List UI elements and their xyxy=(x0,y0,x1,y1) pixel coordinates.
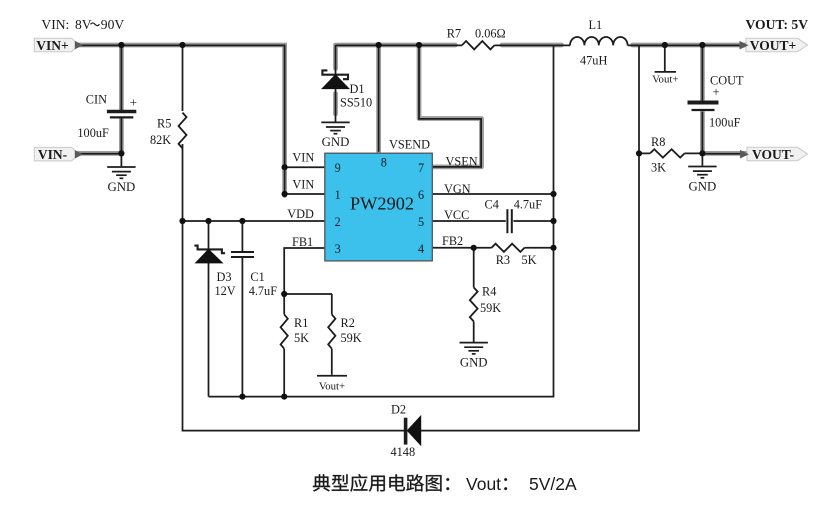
svg-text:8V: 8V xyxy=(75,17,92,32)
svg-text:+: + xyxy=(713,85,720,99)
svg-text:59K: 59K xyxy=(341,331,362,345)
svg-text:FB2: FB2 xyxy=(442,234,463,248)
svg-text:D2: D2 xyxy=(391,402,406,416)
svg-text:9: 9 xyxy=(335,161,341,175)
svg-text:VSEND: VSEND xyxy=(389,138,430,152)
svg-text:59K: 59K xyxy=(480,301,501,315)
svg-text:+: + xyxy=(130,95,137,110)
svg-text:5K: 5K xyxy=(294,331,309,345)
svg-text:R4: R4 xyxy=(482,285,496,299)
svg-text:5V/2A: 5V/2A xyxy=(529,474,577,494)
svg-text:12V: 12V xyxy=(215,284,236,298)
svg-text:Vout: Vout xyxy=(466,474,501,494)
svg-text:5: 5 xyxy=(418,215,424,229)
svg-text:7: 7 xyxy=(418,161,424,175)
svg-text:D1: D1 xyxy=(350,82,365,96)
svg-text:1: 1 xyxy=(335,188,341,202)
svg-text:GND: GND xyxy=(322,135,350,149)
svg-text:100uF: 100uF xyxy=(709,116,741,130)
svg-text:4: 4 xyxy=(418,242,424,256)
svg-text:PW2902: PW2902 xyxy=(350,194,414,214)
svg-text:VSEN: VSEN xyxy=(446,154,478,168)
svg-text:90V: 90V xyxy=(101,17,125,32)
svg-text:C4: C4 xyxy=(485,197,499,211)
svg-text:R1: R1 xyxy=(294,316,308,330)
svg-text:6: 6 xyxy=(418,188,424,202)
svg-text:R2: R2 xyxy=(341,316,355,330)
svg-text:GND: GND xyxy=(689,179,717,193)
svg-text:5K: 5K xyxy=(522,253,537,267)
svg-text:FB1: FB1 xyxy=(292,235,313,249)
svg-text:GND: GND xyxy=(460,355,488,369)
svg-text:R8: R8 xyxy=(651,135,665,149)
svg-text:4.7uF: 4.7uF xyxy=(249,284,278,298)
svg-text:3: 3 xyxy=(335,242,341,256)
svg-text:VOUT+: VOUT+ xyxy=(750,38,796,53)
svg-text:100uF: 100uF xyxy=(77,126,109,140)
svg-text:D3: D3 xyxy=(217,270,232,284)
svg-text:L1: L1 xyxy=(589,18,603,32)
svg-text:VGN: VGN xyxy=(444,182,471,196)
svg-text:0.06Ω: 0.06Ω xyxy=(475,26,506,40)
svg-text:VIN+: VIN+ xyxy=(36,38,68,53)
svg-text:47uH: 47uH xyxy=(580,53,607,67)
svg-text:GND: GND xyxy=(108,180,136,194)
svg-text:VCC: VCC xyxy=(444,208,469,222)
svg-text:VOUT-: VOUT- xyxy=(752,147,794,162)
svg-text:SS510: SS510 xyxy=(340,95,372,109)
svg-text:VIN: VIN xyxy=(292,150,314,164)
svg-text:C1: C1 xyxy=(250,270,264,284)
svg-text:VOUT: 5V: VOUT: 5V xyxy=(746,17,809,32)
svg-text:Vout+: Vout+ xyxy=(319,380,345,392)
svg-text:4.7uF: 4.7uF xyxy=(514,197,543,211)
svg-text:CIN: CIN xyxy=(86,92,107,106)
svg-text:R5: R5 xyxy=(157,116,171,130)
svg-text:VIN-: VIN- xyxy=(38,147,67,162)
svg-text:82K: 82K xyxy=(150,133,171,147)
svg-text:3K: 3K xyxy=(651,160,666,174)
svg-text:2: 2 xyxy=(335,215,341,229)
svg-text:8: 8 xyxy=(381,156,387,170)
svg-text:VIN:: VIN: xyxy=(41,17,69,32)
svg-text:4148: 4148 xyxy=(391,445,416,459)
svg-text:VIN: VIN xyxy=(292,178,314,192)
svg-text:VDD: VDD xyxy=(287,207,314,221)
svg-text:R7: R7 xyxy=(447,26,461,40)
svg-text:R3: R3 xyxy=(496,253,510,267)
svg-text:Vout+: Vout+ xyxy=(652,74,678,86)
